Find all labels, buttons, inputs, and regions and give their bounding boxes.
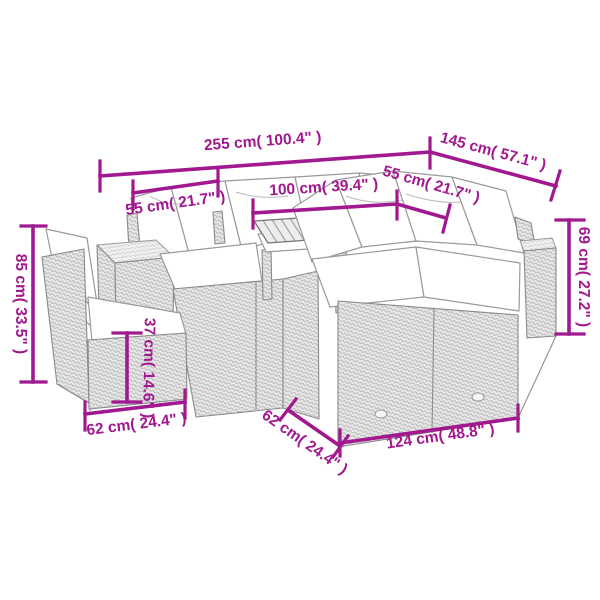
diagram-canvas: 255 cm( 100.4" ) 145 cm( 57.1" ) 55 cm( … bbox=[0, 0, 600, 600]
dim-sofa-height-label: 69 cm( 27.2" ) bbox=[575, 227, 592, 327]
front-vent-left bbox=[375, 410, 387, 418]
dim-back-height-label: 85 cm( 33.5" ) bbox=[12, 254, 29, 354]
dim-ottoman-width-label: 62 cm( 24.4" ) bbox=[86, 410, 188, 439]
product-dimension-diagram: 255 cm( 100.4" ) 145 cm( 57.1" ) 55 cm( … bbox=[0, 0, 600, 600]
dim-overall-width-label: 255 cm( 100.4" ) bbox=[203, 129, 322, 155]
dim-ottoman-height-label: 37 cm( 14.6" ) bbox=[139, 318, 158, 419]
ottoman bbox=[88, 333, 187, 409]
front-vent-right bbox=[472, 393, 484, 401]
